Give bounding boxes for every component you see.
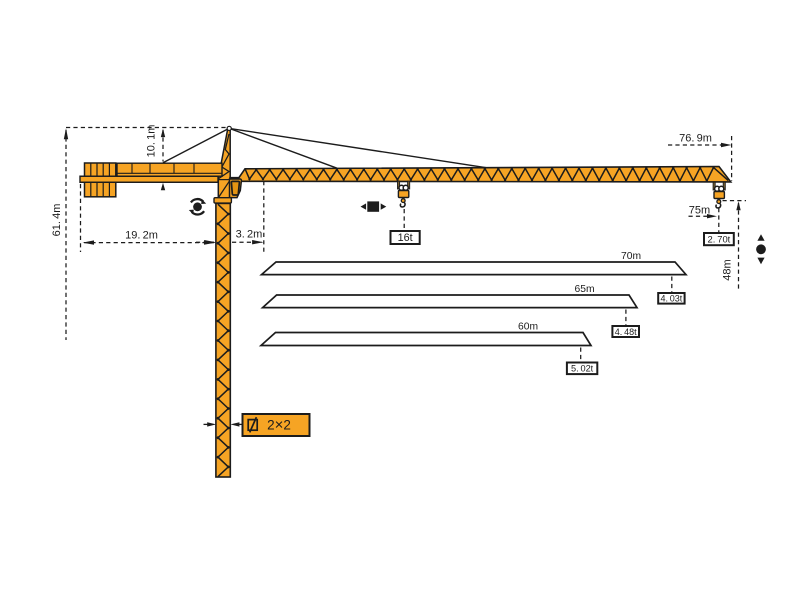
svg-text:16t: 16t bbox=[398, 232, 413, 244]
svg-text:70m: 70m bbox=[621, 251, 641, 262]
svg-text:4. 48t: 4. 48t bbox=[615, 327, 637, 337]
svg-text:75m: 75m bbox=[689, 204, 710, 216]
svg-text:19. 2m: 19. 2m bbox=[125, 230, 158, 242]
svg-text:10. 1m: 10. 1m bbox=[146, 125, 158, 158]
svg-text:65m: 65m bbox=[574, 284, 594, 295]
svg-text:76. 9m: 76. 9m bbox=[679, 132, 712, 144]
svg-text:60m: 60m bbox=[518, 321, 538, 332]
svg-text:61. 4m: 61. 4m bbox=[51, 204, 63, 237]
svg-text:2. 70t: 2. 70t bbox=[708, 234, 731, 245]
svg-text:48m: 48m bbox=[722, 259, 734, 280]
svg-text:2×2: 2×2 bbox=[267, 417, 291, 434]
svg-text:3. 2m: 3. 2m bbox=[236, 229, 263, 241]
svg-text:4. 03t: 4. 03t bbox=[660, 294, 682, 304]
svg-text:5. 02t: 5. 02t bbox=[571, 364, 594, 374]
